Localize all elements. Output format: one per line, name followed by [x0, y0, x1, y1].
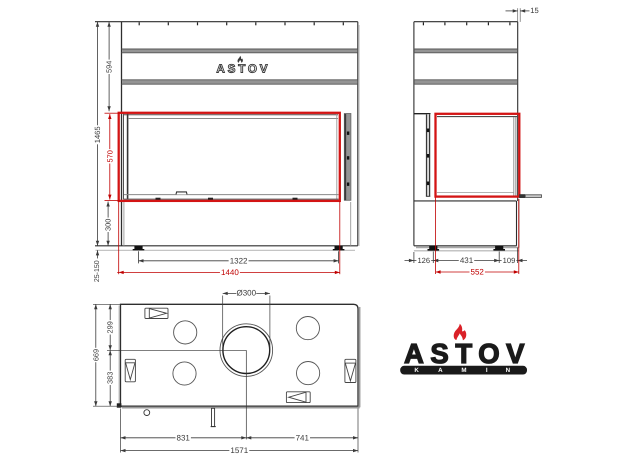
svg-text:109: 109 [503, 256, 516, 265]
svg-text:1322: 1322 [230, 256, 248, 265]
svg-text:1440: 1440 [221, 268, 239, 277]
svg-text:552: 552 [471, 268, 485, 277]
svg-text:383: 383 [106, 372, 115, 384]
svg-text:299: 299 [106, 321, 115, 333]
svg-text:Ø300: Ø300 [237, 289, 257, 298]
svg-text:I: I [486, 367, 488, 374]
svg-text:ASTOV: ASTOV [216, 62, 268, 75]
svg-text:594: 594 [104, 61, 113, 73]
svg-text:ASTOV: ASTOV [404, 338, 526, 369]
svg-text:15: 15 [530, 6, 538, 15]
svg-text:431: 431 [460, 256, 474, 265]
svg-text:741: 741 [296, 433, 310, 442]
svg-text:M: M [461, 367, 466, 374]
svg-text:1571: 1571 [230, 446, 248, 455]
svg-text:K: K [414, 367, 419, 374]
svg-text:669: 669 [91, 349, 100, 361]
svg-text:300: 300 [104, 219, 113, 231]
svg-text:126: 126 [417, 256, 430, 265]
svg-text:25-150: 25-150 [94, 260, 101, 282]
svg-text:A: A [438, 367, 443, 374]
svg-text:N: N [506, 367, 511, 374]
svg-text:570: 570 [105, 150, 114, 162]
svg-text:831: 831 [177, 433, 191, 442]
svg-text:1465: 1465 [93, 126, 102, 143]
